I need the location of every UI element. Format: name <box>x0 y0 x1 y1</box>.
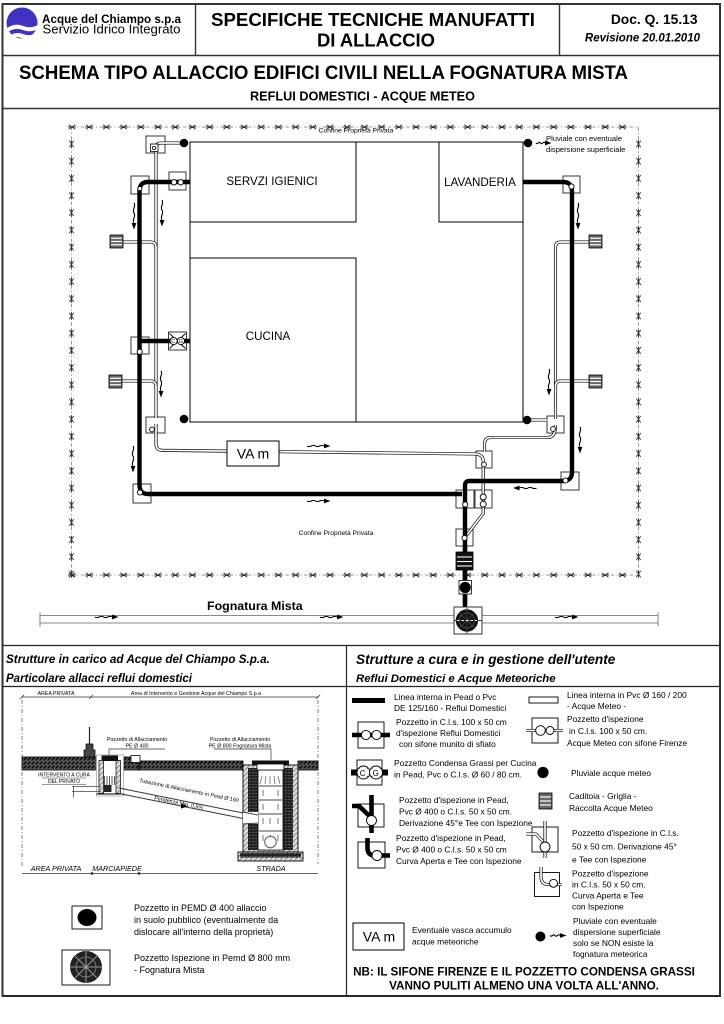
svg-text:con sifone munito di sfiato: con sifone munito di sfiato <box>399 739 496 749</box>
svg-text:Pozzetto d'ispezione in Pead,: Pozzetto d'ispezione in Pead, <box>396 833 506 843</box>
svg-text:Reflui Domestici e Acque Mete: Reflui Domestici e Acque Meteoriche <box>356 673 556 685</box>
svg-text:Pozzetto d'ispezione: Pozzetto d'ispezione <box>572 869 649 879</box>
svg-text:Doc. Q. 15.13: Doc. Q. 15.13 <box>611 12 698 27</box>
svg-text:fognatura meteorica: fognatura meteorica <box>573 949 648 959</box>
svg-text:AREA PRIVATA: AREA PRIVATA <box>30 864 82 873</box>
svg-text:MARCIAPIEDE: MARCIAPIEDE <box>92 864 142 873</box>
svg-text:- Fognatura Mista: - Fognatura Mista <box>134 965 205 975</box>
svg-text:- Acque Meteo -: - Acque Meteo - <box>567 701 626 711</box>
svg-text:VA m: VA m <box>363 929 395 945</box>
svg-text:con Ispezione: con Ispezione <box>572 902 624 912</box>
svg-text:DE 125/160 - Reflui Domestici: DE 125/160 - Reflui Domestici <box>394 703 506 713</box>
svg-text:INTERVENTO A CURA: INTERVENTO A CURA <box>38 773 90 779</box>
svg-text:REFLUI DOMESTICI - ACQUE METEO: REFLUI DOMESTICI - ACQUE METEO <box>250 89 475 104</box>
svg-text:DEL PRIVATO: DEL PRIVATO <box>48 779 80 785</box>
svg-text:Pvc Ø 400 o C.l.s. 50 x 50 cm: Pvc Ø 400 o C.l.s. 50 x 50 cm. <box>399 807 512 817</box>
svg-text:Confine Proprietà Privata: Confine Proprietà Privata <box>299 530 374 537</box>
svg-text:Pluviale con eventuale: Pluviale con eventuale <box>573 916 657 926</box>
svg-text:d'ispezione Reflui Domestici: d'ispezione Reflui Domestici <box>396 728 501 738</box>
svg-text:Particolare allacci reflui dom: Particolare allacci reflui domestici <box>6 673 193 685</box>
svg-text:Caditoia - Griglia -: Caditoia - Griglia - <box>569 791 637 801</box>
svg-text:G: G <box>179 339 183 345</box>
svg-text:Servizio Idrico Integrato: Servizio Idrico Integrato <box>43 21 181 36</box>
svg-text:Linea interna in Pead o Pvc: Linea interna in Pead o Pvc <box>394 692 496 702</box>
svg-text:Pendenza Min. 0,5%: Pendenza Min. 0,5% <box>154 796 204 812</box>
svg-text:Pvc Ø 400 o C.l.s. 50 x 50 cm: Pvc Ø 400 o C.l.s. 50 x 50 cm <box>396 845 507 855</box>
svg-text:SCHEMA TIPO ALLACCIO EDIFICI C: SCHEMA TIPO ALLACCIO EDIFICI CIVILI NELL… <box>19 62 628 84</box>
svg-text:G: G <box>373 769 379 778</box>
svg-text:Strutture a cura e in gestione: Strutture a cura e in gestione dell'uten… <box>356 652 616 667</box>
svg-text:in Pead, Pvc o C.l.s. Ø 60 / 8: in Pead, Pvc o C.l.s. Ø 60 / 80 cm. <box>394 770 522 780</box>
svg-text:Strutture in carico ad Acque d: Strutture in carico ad Acque del Chiampo… <box>6 653 270 666</box>
svg-text:STRADA: STRADA <box>256 864 285 873</box>
svg-text:AREA PRIVATA: AREA PRIVATA <box>37 691 75 697</box>
svg-text:DI ALLACCIO: DI ALLACCIO <box>317 29 435 50</box>
svg-text:Curva Aperta e Tee con Ispezio: Curva Aperta e Tee con Ispezione <box>396 856 522 866</box>
svg-text:e Tee con Ispezione: e Tee con Ispezione <box>572 855 647 865</box>
svg-text:Pozzetto Ispezione in Pemd Ø 8: Pozzetto Ispezione in Pemd Ø 800 mm <box>134 953 290 963</box>
svg-text:Pozzetto di Allacciamento: Pozzetto di Allacciamento <box>210 737 270 743</box>
svg-text:solo se NON esiste la: solo se NON esiste la <box>573 938 654 948</box>
svg-text:Eventuale vasca accumulo: Eventuale vasca accumulo <box>412 925 512 935</box>
svg-text:Revisione 20.01.2010: Revisione 20.01.2010 <box>585 33 701 45</box>
svg-text:Pozzetto Condensa Grassi per C: Pozzetto Condensa Grassi per Cucina <box>394 758 537 768</box>
svg-text:PE Ø 400: PE Ø 400 <box>126 744 149 750</box>
svg-text:NB: IL SIFONE FIRENZE E IL POZ: NB: IL SIFONE FIRENZE E IL POZZETTO COND… <box>353 966 695 979</box>
svg-text:Curva Aperta e Tee: Curva Aperta e Tee <box>572 891 644 901</box>
svg-text:acque meteoriche: acque meteoriche <box>412 937 479 947</box>
svg-text:dispersione superficiale: dispersione superficiale <box>546 145 625 154</box>
svg-text:Pozzetto in C.l.s. 100 x 50 c: Pozzetto in C.l.s. 100 x 50 cm <box>396 717 507 727</box>
svg-text:SPECIFICHE TECNICHE MANUFATTI: SPECIFICHE TECNICHE MANUFATTI <box>211 9 535 30</box>
svg-text:VA m: VA m <box>237 446 269 462</box>
svg-text:C: C <box>171 339 175 345</box>
svg-text:C: C <box>360 769 366 778</box>
svg-text:Pozzetto in PEMD Ø 400 allacci: Pozzetto in PEMD Ø 400 allaccio <box>134 903 267 913</box>
svg-text:Raccolta Acque Meteo: Raccolta Acque Meteo <box>569 803 653 813</box>
svg-text:Pozzetto d'ispezione in C.l.s.: Pozzetto d'ispezione in C.l.s. <box>572 828 679 838</box>
svg-text:VANNO PULITI ALMENO UNA VOLTA: VANNO PULITI ALMENO UNA VOLTA ALL'ANNO. <box>389 980 659 993</box>
svg-text:PE Ø 800 Fognatura Mista: PE Ø 800 Fognatura Mista <box>209 744 272 750</box>
svg-text:Acque Meteo con sifone Firenze: Acque Meteo con sifone Firenze <box>567 738 687 748</box>
svg-text:in C.l.s. 100 x 50 cm.: in C.l.s. 100 x 50 cm. <box>569 726 647 736</box>
svg-text:Pozzetto d'ispezione in Pead,: Pozzetto d'ispezione in Pead, <box>399 795 509 805</box>
svg-text:Fognatura Mista: Fognatura Mista <box>207 599 303 613</box>
svg-text:dispersione superficiale: dispersione superficiale <box>573 927 661 937</box>
svg-text:in suolo pubblico (eventualmen: in suolo pubblico (eventualmente da <box>134 915 278 925</box>
svg-text:LAVANDERIA: LAVANDERIA <box>444 176 516 189</box>
svg-text:Pozzetto d'ispezione: Pozzetto d'ispezione <box>567 714 644 724</box>
svg-text:SERVZI IGIENICI: SERVZI IGIENICI <box>226 175 317 188</box>
svg-text:Linea interna in Pvc Ø 160 / 2: Linea interna in Pvc Ø 160 / 200 <box>567 690 687 700</box>
svg-text:Pozzetto di Allacciamento: Pozzetto di Allacciamento <box>107 737 167 743</box>
svg-text:50 x 50 cm. Derivazione 45°: 50 x 50 cm. Derivazione 45° <box>572 842 677 852</box>
svg-text:Area di Intervento e Gestione: Area di Intervento e Gestione Acque del … <box>131 691 261 697</box>
svg-text:in C.l.s. 50 x 50 cm.: in C.l.s. 50 x 50 cm. <box>572 880 646 890</box>
svg-text:CUCINA: CUCINA <box>246 330 291 343</box>
svg-text:Pluviale acque meteo: Pluviale acque meteo <box>571 768 651 778</box>
svg-text:Pluviale con eventuale: Pluviale con eventuale <box>546 134 622 143</box>
svg-text:dislocare all'interno della pr: dislocare all'interno della proprietà) <box>134 927 273 937</box>
svg-text:Derivazione 45°e Tee con Ispez: Derivazione 45°e Tee con Ispezione <box>399 818 533 828</box>
svg-text:Confine Proprietà Privata: Confine Proprietà Privata <box>319 128 394 135</box>
